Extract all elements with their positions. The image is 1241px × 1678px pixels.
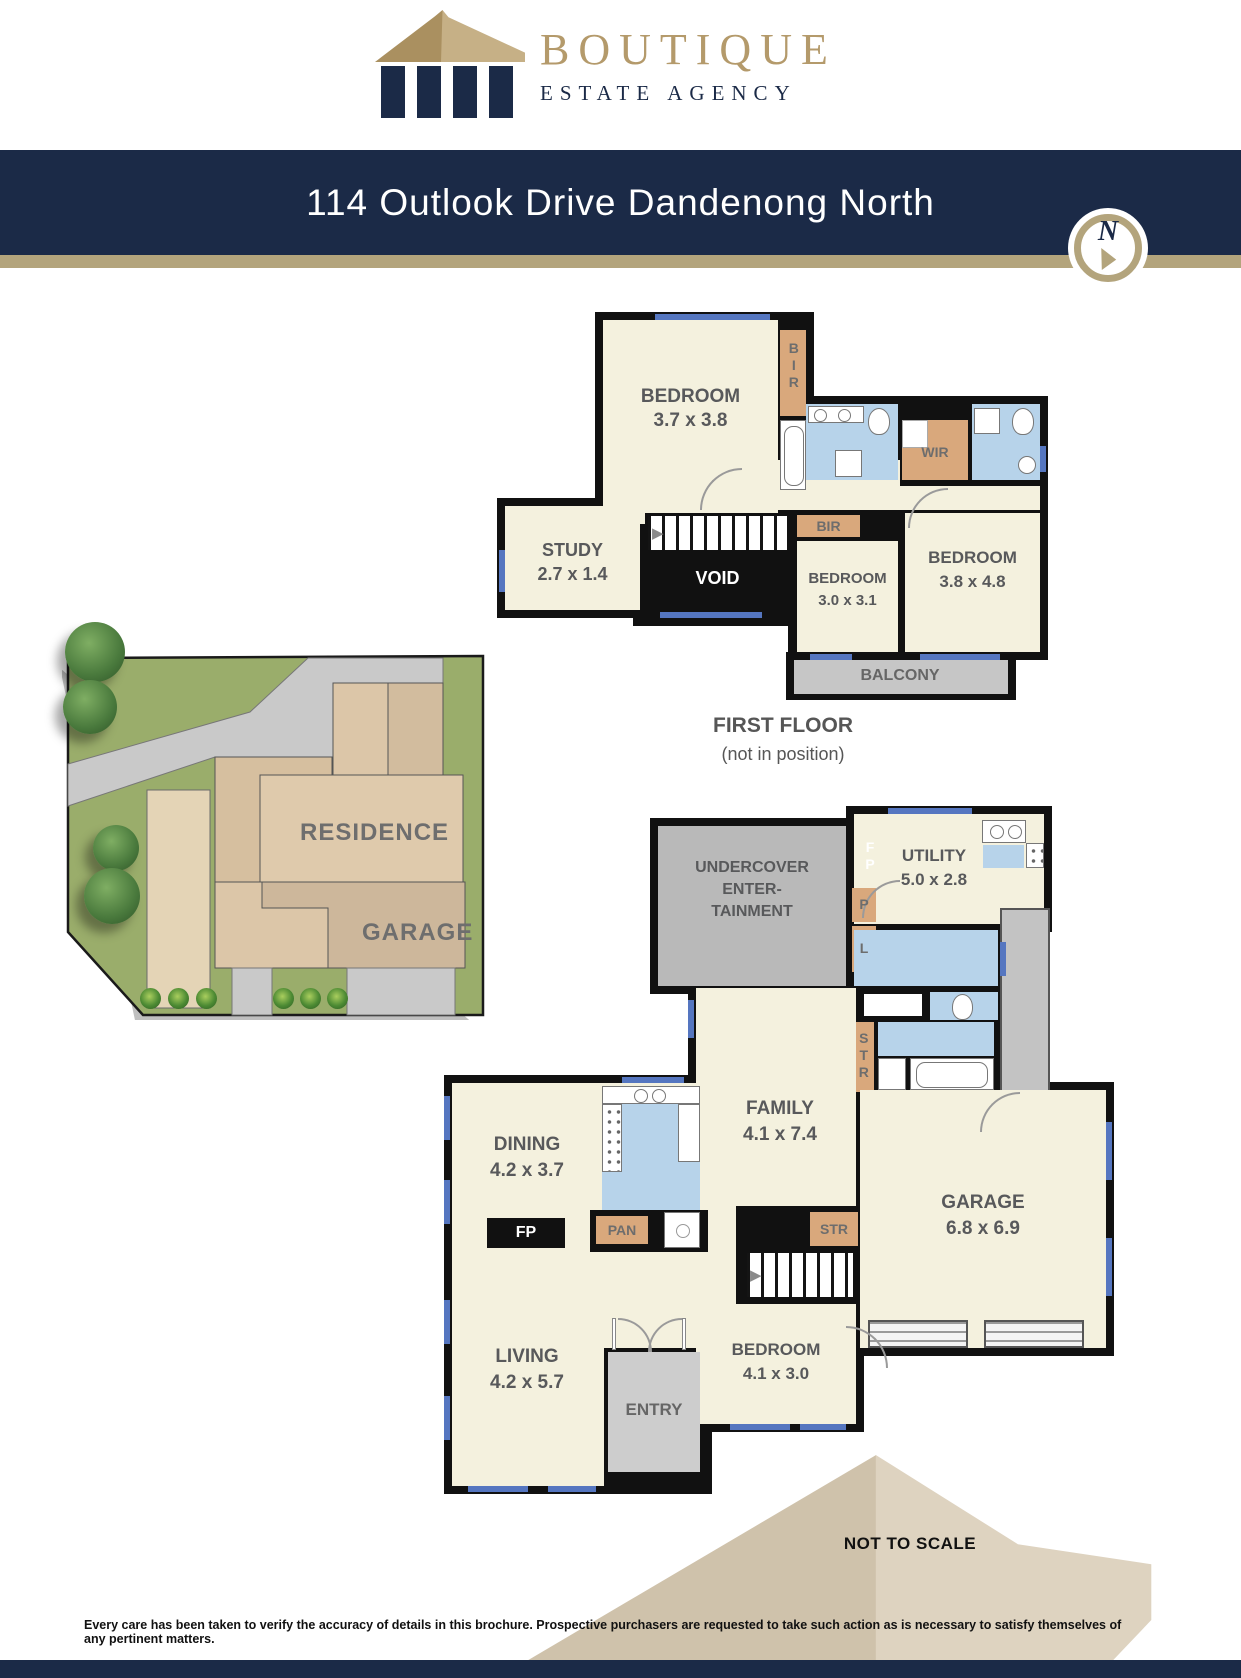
window <box>730 1424 790 1430</box>
undercover-label-2: ENTER- <box>660 880 844 899</box>
logo-column <box>489 66 513 118</box>
tree-icon <box>63 680 117 734</box>
garage-label: GARAGE <box>880 1192 1086 1215</box>
address-banner: 114 Outlook Drive Dandenong North <box>0 150 1241 255</box>
bir2-label: BIR <box>797 518 860 535</box>
tree-icon <box>84 868 140 924</box>
site-path <box>232 968 272 1015</box>
door-leaf <box>612 1318 616 1350</box>
bathtub-icon <box>784 426 804 486</box>
closet-pantry: PAN <box>596 1216 648 1244</box>
site-path <box>347 968 455 1015</box>
window <box>1106 1238 1112 1296</box>
study-label: STUDY <box>505 540 640 562</box>
window <box>548 1486 596 1492</box>
window <box>888 808 972 814</box>
brand-name: BOUTIQUE <box>540 24 1020 75</box>
shrub-icon <box>273 988 294 1009</box>
brand-tagline: ESTATE AGENCY <box>540 81 1020 106</box>
room-laundry <box>854 930 998 986</box>
landing-hall <box>860 486 1040 510</box>
window <box>920 654 1000 660</box>
tree-icon <box>93 825 139 871</box>
fireplace-label: FP <box>487 1223 565 1242</box>
dining-dims: 4.2 x 3.7 <box>452 1160 602 1183</box>
agency-brand: BOUTIQUE ESTATE AGENCY <box>540 24 1020 106</box>
basin-icon <box>1008 825 1022 839</box>
site-residence-label: RESIDENCE <box>300 819 449 846</box>
dining-label: DINING <box>452 1134 602 1157</box>
footer-bar <box>0 1660 1241 1678</box>
basin-icon <box>814 409 827 422</box>
window <box>1040 446 1046 472</box>
basin-icon <box>838 409 851 422</box>
logo-column <box>381 66 405 118</box>
appliance-dial <box>676 1224 690 1238</box>
stairs-arrow-icon: ▶ <box>750 1266 762 1284</box>
pantry-label: PAN <box>596 1222 648 1239</box>
site-walkway <box>147 790 210 1008</box>
utility-label: UTILITY <box>854 846 1014 866</box>
bedroom2-label: BEDROOM <box>797 570 898 588</box>
basin-icon <box>652 1089 666 1103</box>
window <box>1000 942 1006 976</box>
disclaimer-text: Every care has been taken to verify the … <box>84 1618 1142 1646</box>
gold-stripe <box>0 255 1241 268</box>
str2-label: STR <box>810 1221 858 1238</box>
garage-door <box>868 1320 968 1348</box>
compass-north-icon: N <box>1068 208 1148 288</box>
closet-bir1: BIR <box>780 330 806 416</box>
window <box>444 1180 450 1224</box>
stove-icon <box>1026 843 1044 868</box>
window <box>800 1424 846 1430</box>
garage-door <box>984 1320 1084 1348</box>
void-label: VOID <box>645 568 790 590</box>
wir-label: WIR <box>902 444 968 461</box>
door-leaf <box>682 1318 686 1350</box>
window <box>1106 1122 1112 1180</box>
brochure-page: BOUTIQUE ESTATE AGENCY 114 Outlook Drive… <box>0 0 1241 1678</box>
site-garage-label: GARAGE <box>362 919 473 946</box>
window <box>444 1096 450 1140</box>
kitchen-bench <box>678 1104 700 1162</box>
bedroom4-label: BEDROOM <box>700 1340 852 1360</box>
shower-icon <box>878 1058 906 1090</box>
living-label: LIVING <box>452 1346 602 1369</box>
basin-icon <box>990 825 1004 839</box>
bir1-label: BIR <box>785 340 802 391</box>
balcony-label: BALCONY <box>800 666 1000 685</box>
shrub-icon <box>300 988 321 1009</box>
living-dims: 4.2 x 5.7 <box>452 1372 602 1395</box>
logo-column <box>453 66 477 118</box>
first-floor-subtitle: (not in position) <box>633 744 933 765</box>
closet-str2: STR <box>810 1212 858 1246</box>
bathtub-icon <box>916 1062 988 1088</box>
family-dims: 4.1 x 7.4 <box>700 1124 860 1147</box>
shrub-icon <box>140 988 161 1009</box>
room-bathroom-ground <box>878 1022 994 1056</box>
property-address: 114 Outlook Drive Dandenong North <box>0 150 1241 255</box>
first-floor-title: FIRST FLOOR <box>633 714 933 738</box>
stairs-arrow-icon: ▶ <box>652 524 664 542</box>
bedroom1-label: BEDROOM <box>603 386 778 409</box>
str1-label: STR <box>855 1030 872 1081</box>
shrub-icon <box>168 988 189 1009</box>
toilet-icon <box>868 408 890 435</box>
entry-label: ENTRY <box>608 1400 700 1420</box>
pantry-small-label: P <box>852 896 876 913</box>
toilet-icon <box>1012 408 1034 435</box>
window <box>444 1300 450 1344</box>
undercover-label-3: TAINMENT <box>660 902 844 921</box>
utility-dims: 5.0 x 2.8 <box>854 870 1014 890</box>
bedroom1-dims: 3.7 x 3.8 <box>603 410 778 433</box>
side-porch <box>1000 908 1050 1094</box>
closet-bir2: BIR <box>797 515 860 537</box>
shower-icon <box>835 450 862 477</box>
shrub-icon <box>327 988 348 1009</box>
linen-label: L <box>852 940 876 957</box>
logo-column <box>417 66 441 118</box>
study-dims: 2.7 x 1.4 <box>505 564 640 586</box>
stove-icon <box>602 1104 622 1172</box>
family-label: FAMILY <box>700 1098 860 1121</box>
undercover-label-1: UNDERCOVER <box>660 858 844 877</box>
agency-logo-icon <box>375 10 525 122</box>
window <box>810 654 852 660</box>
fireplace-box: FP <box>487 1218 565 1248</box>
window <box>688 1000 694 1038</box>
basin-icon <box>634 1089 648 1103</box>
stairs-first-floor <box>645 513 790 553</box>
bedroom2-dims: 3.0 x 3.1 <box>797 592 898 610</box>
bedroom3-dims: 3.8 x 4.8 <box>905 572 1040 592</box>
window <box>444 1396 450 1440</box>
tree-icon <box>65 622 125 682</box>
window <box>468 1486 528 1492</box>
shower-icon <box>974 408 1000 434</box>
kitchen-bench <box>602 1086 700 1104</box>
not-to-scale-note: NOT TO SCALE <box>790 1534 1030 1554</box>
basin-icon <box>1018 456 1036 474</box>
bedroom4-dims: 4.1 x 3.0 <box>700 1364 852 1384</box>
window <box>660 612 762 618</box>
shrub-icon <box>196 988 217 1009</box>
window <box>655 314 770 320</box>
bedroom3-label: BEDROOM <box>905 548 1040 568</box>
garage-dims: 6.8 x 6.9 <box>880 1218 1086 1241</box>
toilet-icon <box>952 994 973 1020</box>
compass-letter: N <box>1068 216 1148 248</box>
window <box>622 1077 684 1083</box>
